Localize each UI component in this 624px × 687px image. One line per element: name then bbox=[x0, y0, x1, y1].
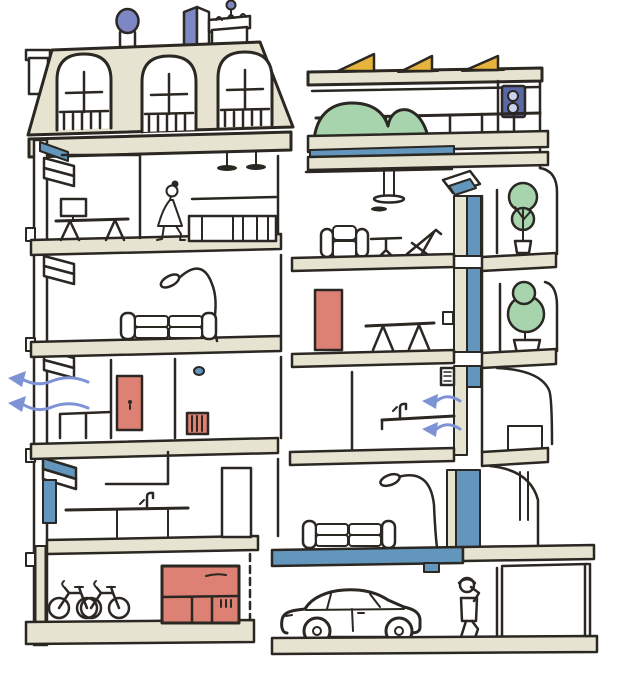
monitor bbox=[61, 199, 86, 216]
red-door bbox=[117, 376, 142, 430]
sofa bbox=[303, 521, 395, 548]
tall-cabinet bbox=[222, 468, 251, 537]
dormer-window bbox=[218, 52, 272, 127]
armchair bbox=[321, 226, 368, 257]
sofa bbox=[121, 313, 216, 339]
wall-tick bbox=[26, 553, 35, 566]
right-building bbox=[272, 54, 597, 654]
kitchen-counter bbox=[66, 508, 188, 510]
dormer-window bbox=[142, 56, 196, 132]
wall-vent-grille bbox=[441, 368, 454, 385]
garage-ground-slab bbox=[272, 636, 597, 654]
wall-dot bbox=[194, 367, 204, 375]
radiator bbox=[187, 413, 208, 434]
dormer-window bbox=[57, 54, 111, 130]
wall-socket bbox=[443, 312, 453, 324]
mansard-roof bbox=[28, 42, 293, 157]
red-locker-cabinet bbox=[162, 566, 239, 623]
cross-section-illustration bbox=[0, 0, 624, 687]
red-door bbox=[315, 290, 342, 350]
antenna-ball bbox=[227, 1, 236, 10]
